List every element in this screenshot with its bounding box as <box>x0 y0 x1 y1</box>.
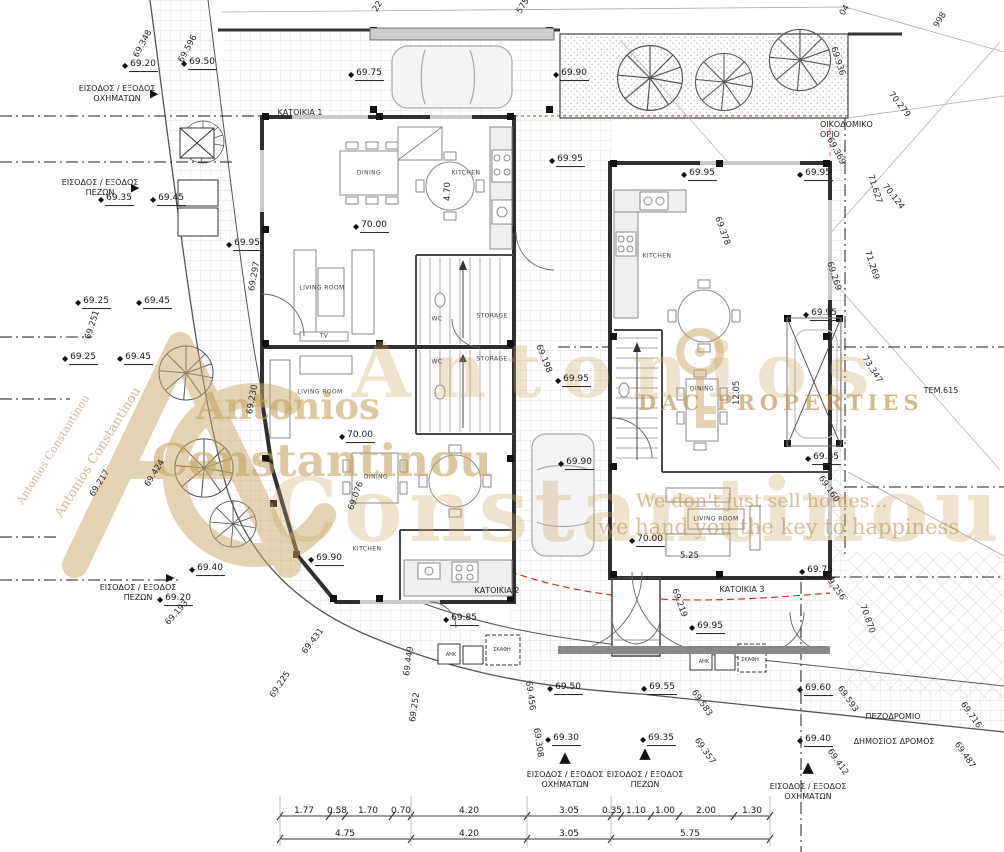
carport <box>370 28 554 40</box>
dimension-lines <box>277 796 773 846</box>
site-plan-drawing <box>0 0 1004 852</box>
site-plan-canvas: Antonios Constantinou Antonios Constanti… <box>0 0 1004 852</box>
car-garage-icon <box>532 434 594 556</box>
car-top-icon <box>392 46 512 108</box>
